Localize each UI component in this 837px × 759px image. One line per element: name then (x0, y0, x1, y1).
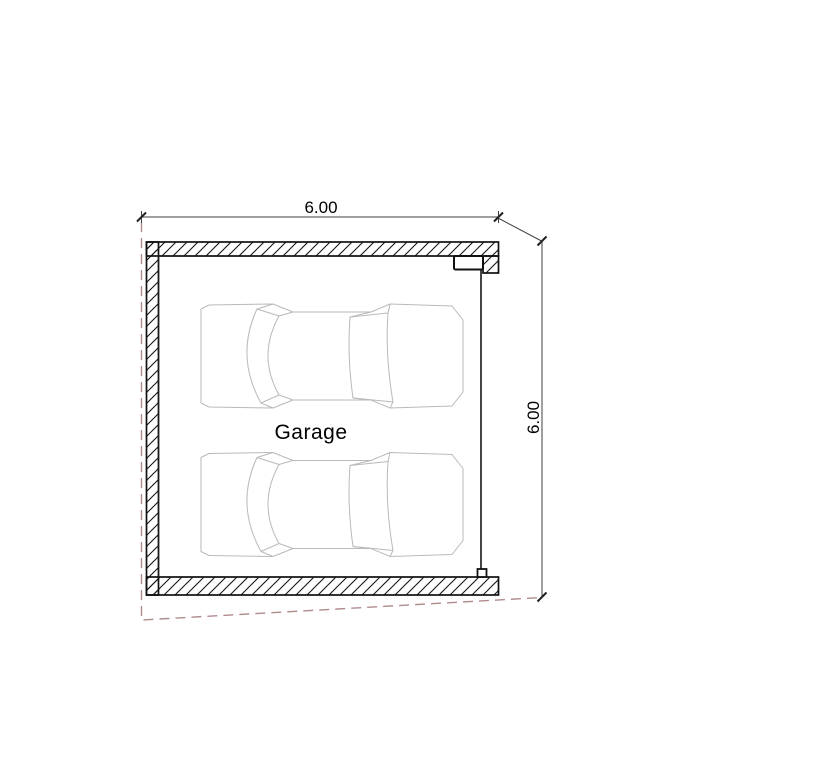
car-top-view-2 (201, 453, 463, 557)
dimension-height-label: 6.00 (524, 401, 543, 434)
dimension-width-label: 6.00 (304, 198, 337, 217)
wall-left (147, 242, 159, 595)
walls (147, 242, 499, 595)
wall-top (147, 242, 499, 256)
door-track-recess (454, 256, 483, 270)
dimension-width: 6.00 (137, 198, 503, 223)
floorplan-canvas: Garage 6.00 6.00 (0, 0, 837, 759)
drawing-stage: Garage 6.00 6.00 (0, 0, 837, 759)
room-label: Garage (274, 421, 347, 444)
wall-return-top-right (483, 256, 499, 273)
car-top-view-1 (201, 304, 463, 408)
wall-bottom (147, 577, 499, 595)
door-jamb-block (478, 569, 487, 577)
inner-wall-outline (159, 256, 482, 577)
garage-door-opening (454, 256, 487, 577)
dimension-height: 6.00 (499, 219, 547, 602)
dimension-extension-line (499, 219, 542, 242)
